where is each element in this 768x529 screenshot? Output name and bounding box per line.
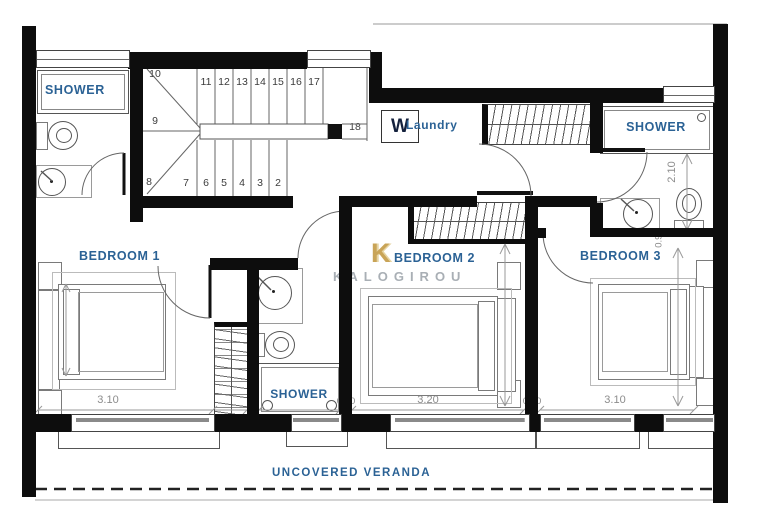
wall-top-a	[128, 52, 307, 69]
logo-k-icon: K	[371, 238, 391, 269]
shower-drain-left-icon	[262, 400, 273, 411]
wall-br3-top-stub	[538, 228, 546, 238]
wardrobe-hall	[482, 104, 603, 145]
stair-handrail	[200, 124, 328, 139]
wall-shower-right-a	[590, 103, 603, 153]
blanket-br2	[372, 304, 478, 388]
toilet-top-left	[36, 120, 78, 150]
wall-bath-left	[247, 258, 259, 420]
stair-step-13: 13	[233, 76, 251, 88]
shower-top-left-label: SHOWER	[45, 83, 105, 97]
stair-step-2: 2	[269, 177, 287, 189]
wall-br2-top-a	[352, 196, 477, 207]
toilet-top-right	[674, 188, 704, 230]
nightstand-br2-top	[497, 262, 521, 290]
stair-step-14: 14	[251, 76, 269, 88]
wall-outer-left	[22, 26, 36, 497]
shower-drain-right-icon	[326, 400, 337, 411]
sill-shower-right	[648, 431, 714, 449]
wall-bath-right	[339, 196, 352, 432]
bedroom1-label: BEDROOM 1	[79, 249, 160, 263]
wardrobe-bedroom2	[408, 202, 533, 244]
wall-bottom-a	[35, 414, 71, 432]
toilet-middle	[255, 330, 297, 358]
stair-step-11: 11	[197, 76, 215, 88]
wall-br2-br3-divider	[525, 196, 538, 420]
window-shower-right	[663, 414, 715, 432]
window-top-mid	[307, 50, 371, 68]
window-bedroom2	[390, 414, 530, 432]
sink-middle-icon	[258, 276, 292, 310]
window-bedroom1	[71, 414, 215, 432]
wall-stair-bottom	[143, 196, 293, 208]
pillow-br3	[670, 289, 687, 375]
wall-bottom-b	[213, 414, 291, 432]
stair-step-16: 16	[287, 76, 305, 88]
stair-newel	[328, 124, 342, 139]
sill-bedroom2	[386, 431, 536, 449]
window-top-right	[663, 86, 715, 103]
wall-top-b	[373, 88, 663, 103]
bedroom3-label: BEDROOM 3	[580, 249, 661, 263]
dim-br1-width: 3.10	[88, 394, 128, 406]
stair-step-15: 15	[269, 76, 287, 88]
stair-step-17: 17	[305, 76, 323, 88]
sill-bathroom	[286, 431, 348, 447]
sill-bedroom1	[58, 431, 220, 449]
blanket-br3	[602, 292, 668, 372]
nightstand-br3-bottom	[696, 378, 714, 406]
floor-plan: W Laundry SHOWER SHOWER SHOWER BEDROOM 1…	[0, 0, 768, 529]
stair-step-4: 4	[233, 177, 251, 189]
stair-step-12: 12	[215, 76, 233, 88]
bedroom2-label: BEDROOM 2	[394, 251, 475, 265]
wall-outer-right	[713, 24, 728, 503]
laundry-label: Laundry	[406, 118, 458, 132]
stair-step-10: 10	[146, 68, 164, 80]
sill-bedroom3	[536, 431, 640, 449]
window-bedroom3	[540, 414, 635, 432]
shower-top-right-label: SHOWER	[601, 120, 711, 134]
wall-br2-top-b	[533, 196, 597, 207]
wall-bottom-e	[633, 414, 663, 432]
closet-bedroom1	[214, 322, 249, 421]
dim-shower-right-depth: 2.10	[666, 152, 678, 192]
sink-dot-3	[635, 211, 638, 214]
stair-step-9: 9	[146, 115, 164, 127]
stair-step-3: 3	[251, 177, 269, 189]
sink-top-right-icon	[623, 199, 653, 229]
sink-dot-2	[272, 290, 275, 293]
wall-stair-left	[130, 52, 143, 222]
stair-step-6: 6	[197, 177, 215, 189]
window-top-left	[36, 50, 130, 68]
sink-dot-1	[50, 180, 53, 183]
stair-step-18: 18	[346, 121, 364, 133]
veranda-label: UNCOVERED VERANDA	[272, 467, 431, 479]
pillow-br2	[478, 301, 495, 391]
wall-bottom-c	[340, 414, 390, 432]
wall-br3-top	[590, 228, 713, 237]
window-bathroom	[291, 414, 342, 432]
dim-br3-width: 3.10	[595, 394, 635, 406]
stair-step-7: 7	[177, 177, 195, 189]
stair-step-5: 5	[215, 177, 233, 189]
blanket-br1	[78, 292, 164, 372]
shower-middle-label: SHOWER	[259, 387, 339, 401]
logo-name: KALOGIROU	[333, 269, 466, 284]
nightstand-br3-top	[696, 260, 714, 288]
